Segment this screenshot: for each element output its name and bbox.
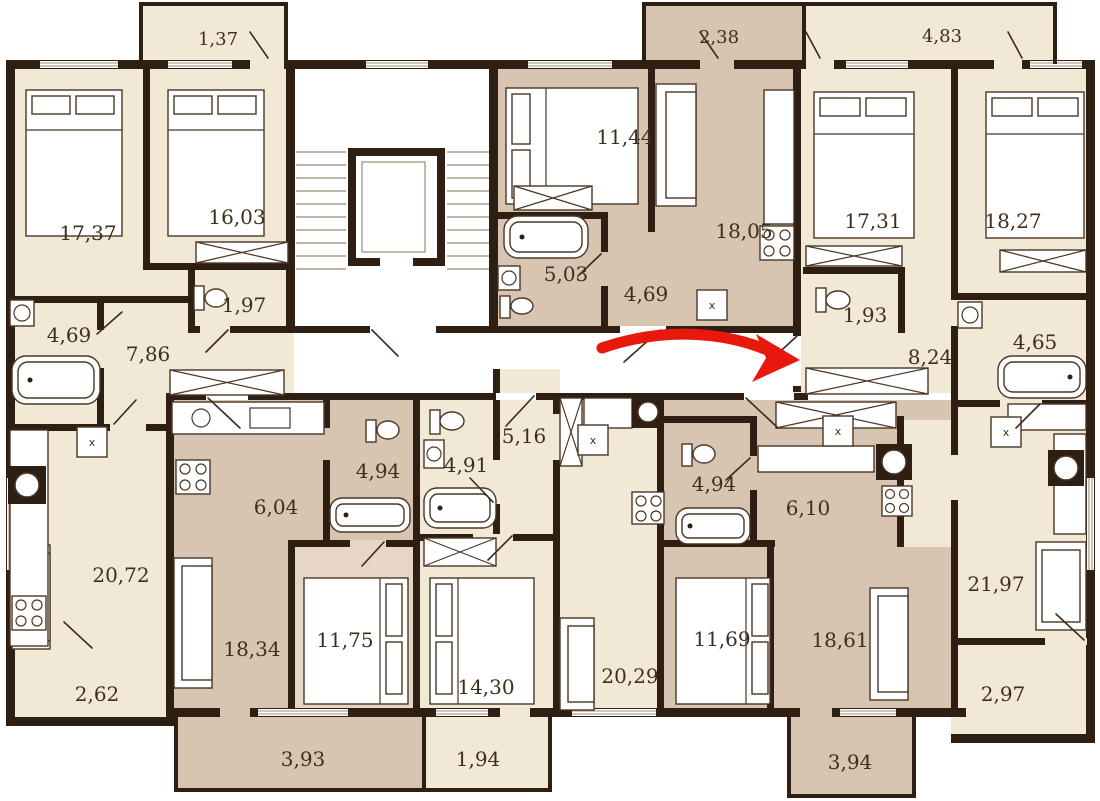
area-label-bath-4-69: 4,69 [47, 323, 92, 347]
wardrobe-16-03 [196, 242, 288, 263]
bathtub-4-65 [998, 356, 1086, 398]
area-label-balcony-4-83: 4,83 [922, 26, 962, 47]
area-label-hall-7-86: 7,86 [126, 342, 171, 366]
area-label-bath-5-03: 5,03 [544, 262, 589, 286]
area-label-wc-1-97: 1,97 [222, 293, 267, 317]
area-label-bedroom-17-31: 17,31 [844, 209, 901, 233]
room-hall-strip [897, 420, 951, 547]
basin-4-91 [424, 440, 444, 468]
floor-plan-drawing: x x x x x 1,37 17,37 16,03 1,97 4,69 7,8… [0, 0, 1100, 801]
area-label-bedroom-18-27: 18,27 [984, 209, 1041, 233]
arrow-head [752, 334, 800, 382]
area-label-bedroom-16-03: 16,03 [208, 205, 265, 229]
bed-17-37 [26, 90, 122, 236]
washer-icon: x [697, 290, 727, 320]
wardrobe-18-27 [1000, 250, 1086, 272]
area-label-bedroom-11-44: 11,44 [596, 125, 653, 149]
washer-icon: x [578, 425, 608, 455]
bathtub-5-03 [504, 216, 588, 258]
washer-label: x [709, 299, 716, 312]
sofa-18-34 [174, 558, 212, 688]
bathtub-4-94-b [676, 508, 750, 544]
bathtub-4-94-a [330, 498, 410, 532]
washer-label: x [1003, 426, 1010, 439]
area-label-bedroom-14-30: 14,30 [457, 675, 514, 699]
area-label-balcony-1-94: 1,94 [456, 747, 501, 771]
area-label-living-18-05: 18,05 [715, 219, 772, 243]
sofa-18-05 [656, 84, 696, 206]
wardrobe-hall-7-86 [170, 370, 284, 395]
area-label-balcony-2-97: 2,97 [981, 682, 1026, 706]
basin-4-69 [10, 300, 34, 326]
area-label-hall-4-69: 4,69 [624, 282, 669, 306]
area-label-bath-4-94-b: 4,94 [692, 472, 737, 496]
entrance-arrow [602, 334, 800, 382]
wardrobe-14-30 [424, 538, 496, 566]
washer-icon: x [823, 416, 853, 446]
sofa-20-29 [560, 618, 594, 710]
area-label-balcony-1-37: 1,37 [198, 29, 238, 50]
washer-icon: x [991, 417, 1021, 447]
area-label-balcony-3-93: 3,93 [281, 747, 326, 771]
area-label-bedroom-11-75: 11,75 [316, 628, 373, 652]
kitchen-20-72 [8, 430, 48, 646]
area-label-wc-1-93: 1,93 [843, 303, 888, 327]
sofa-18-61 [870, 588, 908, 700]
area-label-hall-5-16: 5,16 [502, 424, 547, 448]
wardrobe-11-44 [514, 186, 592, 210]
washer-label: x [89, 436, 96, 449]
area-label-living-18-34: 18,34 [223, 637, 280, 661]
area-label-living-20-29: 20,29 [601, 664, 658, 688]
washer-icon: x [77, 427, 107, 457]
area-label-bedroom-11-69: 11,69 [693, 627, 750, 651]
sofa-21-97 [1036, 542, 1086, 630]
area-label-balcony-3-94: 3,94 [828, 750, 873, 774]
area-label-bath-4-65: 4,65 [1013, 330, 1058, 354]
bathtub-4-69 [12, 356, 100, 404]
area-label-hall-8-24: 8,24 [908, 345, 953, 369]
area-label-kitchen-6-10: 6,10 [786, 496, 831, 520]
area-label-living-21-97: 21,97 [967, 572, 1024, 596]
area-label-balcony-2-62: 2,62 [75, 682, 120, 706]
floor-plan: x x x x x 1,37 17,37 16,03 1,97 4,69 7,8… [0, 0, 1100, 801]
basin-5-03 [498, 266, 520, 290]
wardrobe-corridor-right [806, 368, 928, 394]
elevator-car [362, 162, 425, 252]
washer-label: x [590, 434, 597, 447]
washer-label: x [835, 425, 842, 438]
area-label-balcony-2-38: 2,38 [699, 27, 739, 48]
area-label-bath-4-91: 4,91 [444, 453, 489, 477]
area-label-kitchen-6-04: 6,04 [254, 495, 299, 519]
wardrobe-1-93 [806, 246, 902, 266]
stairwell [296, 148, 489, 269]
area-label-living-20-72: 20,72 [92, 563, 149, 587]
area-label-bedroom-17-37: 17,37 [59, 221, 116, 245]
area-label-bath-4-94-a: 4,94 [356, 459, 401, 483]
basin-4-65 [958, 302, 982, 328]
area-label-living-18-61: 18,61 [811, 628, 868, 652]
